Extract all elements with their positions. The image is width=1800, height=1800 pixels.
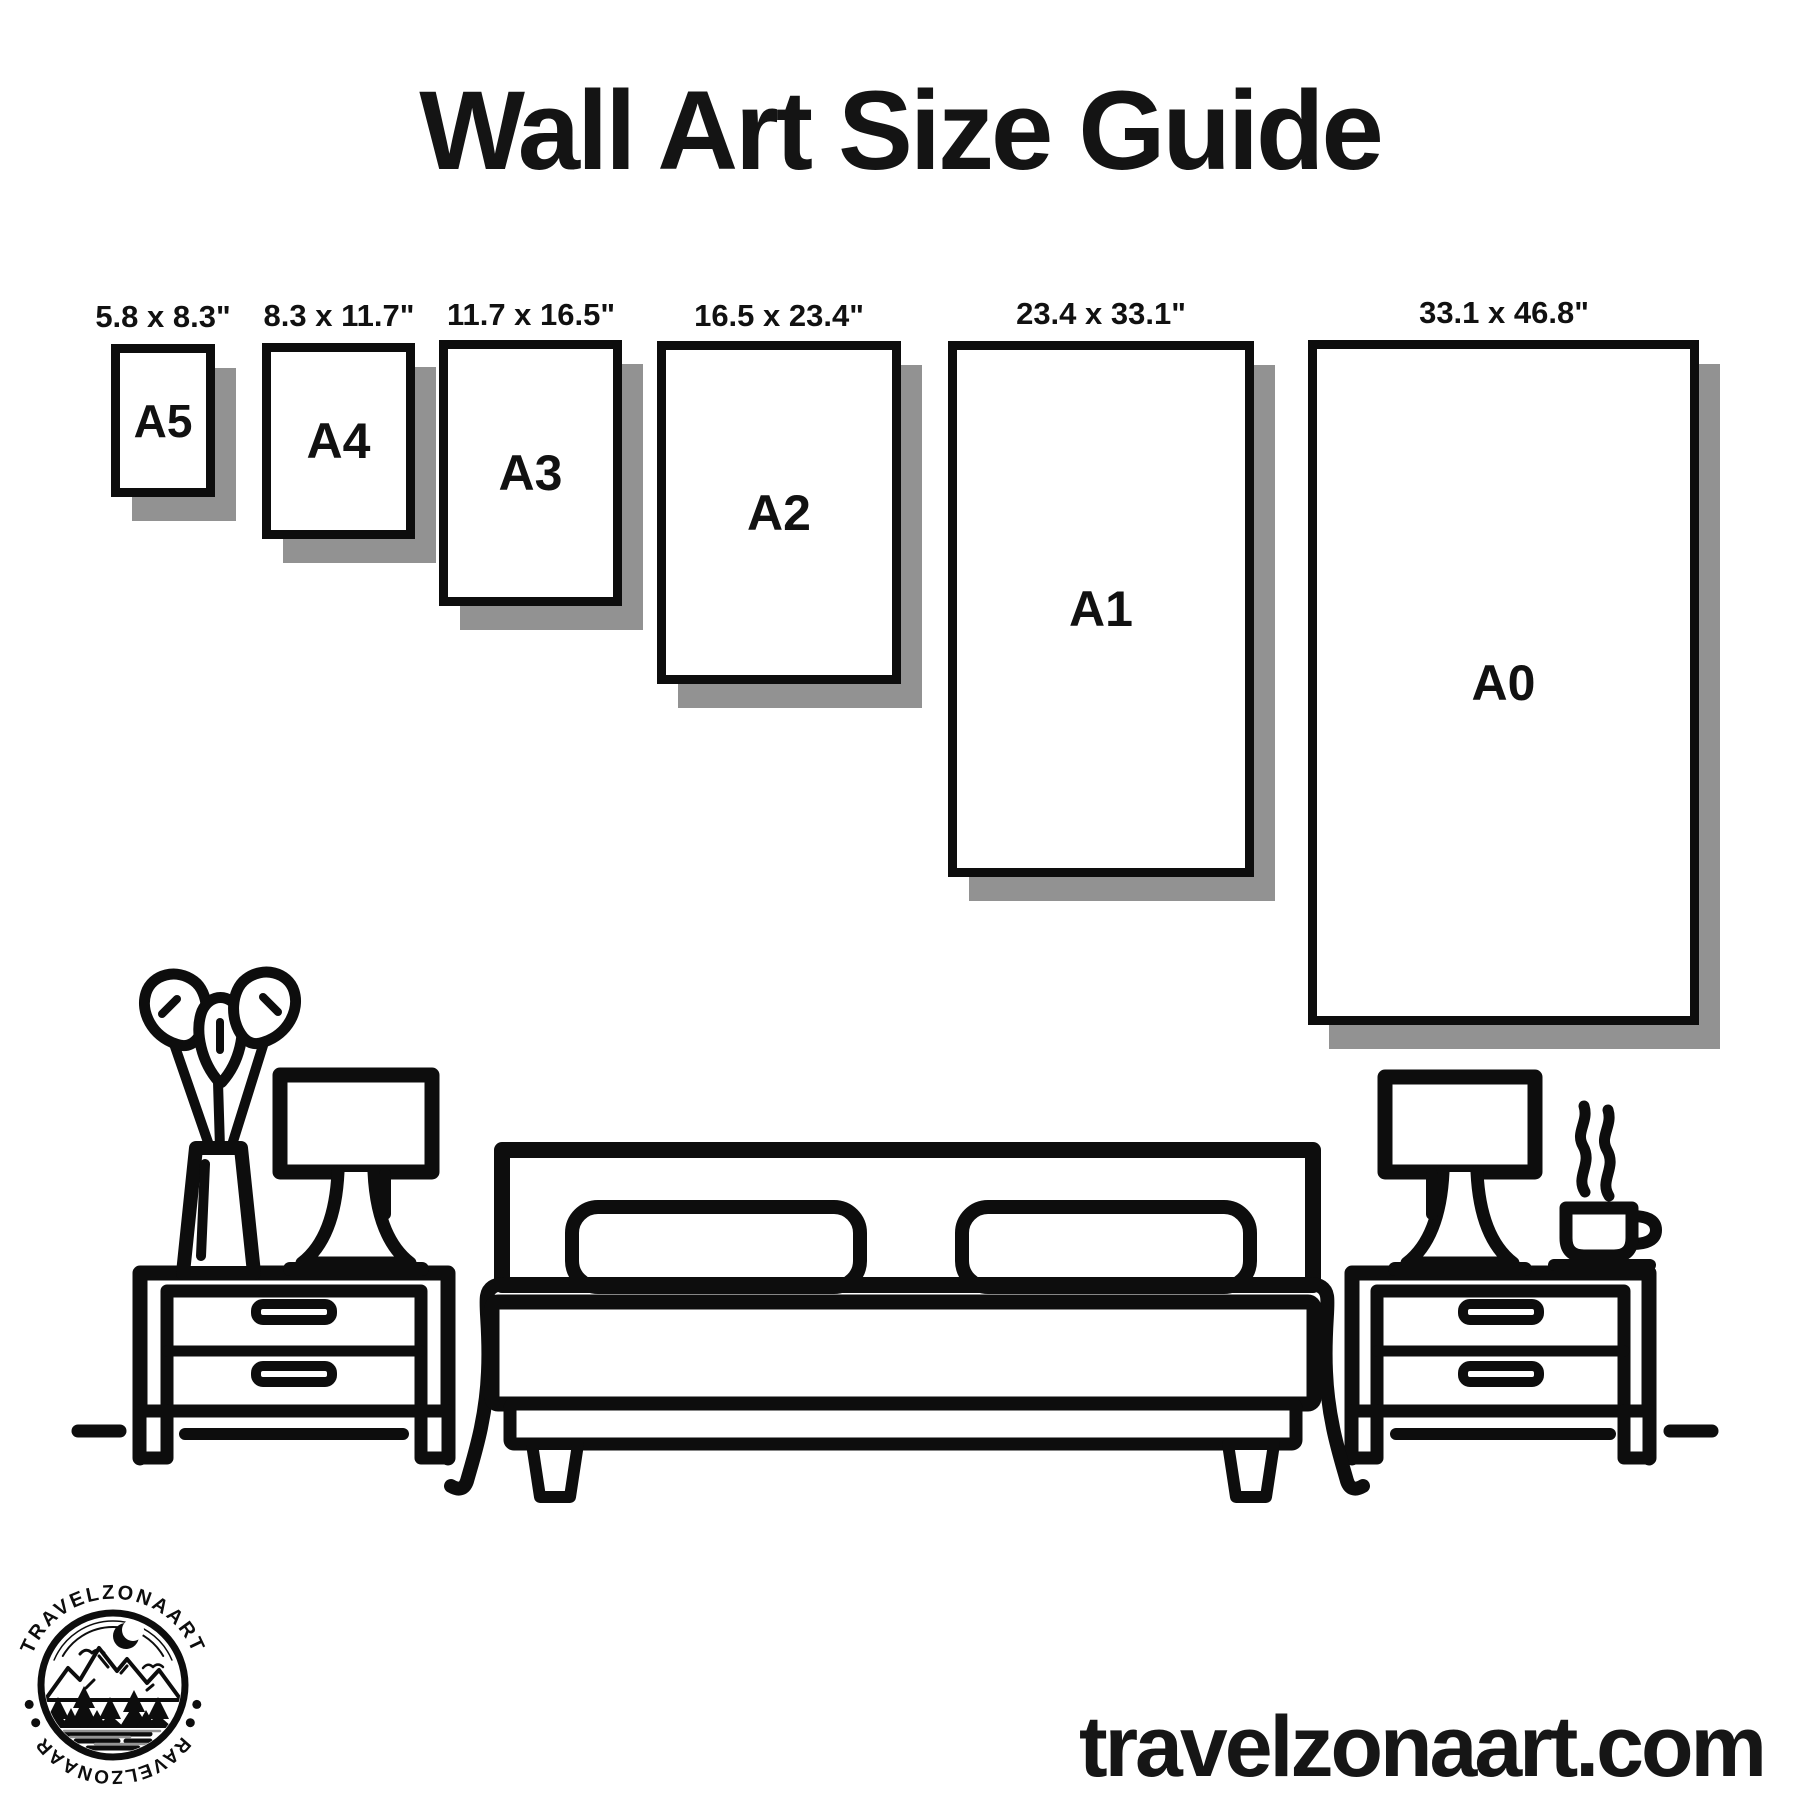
logo-brand-bottom: TRAVELZONAART: [0, 0, 194, 1787]
logo-dot: [192, 1700, 201, 1709]
nightstand-icon: [1352, 1273, 1649, 1458]
pillow: [962, 1207, 1250, 1287]
size-guide-poster: Wall Art Size Guide 5.8 x 8.3" 8.3 x 11.…: [0, 0, 1800, 1800]
steam-icon: [1604, 1110, 1610, 1196]
bed-foot: [532, 1444, 578, 1497]
bed-base: [510, 1404, 1296, 1444]
duvet: [492, 1302, 1314, 1404]
logo-dot: [31, 1718, 40, 1727]
logo-brand-top: TRAVELZONAART: [17, 1582, 210, 1657]
lamp-icon: [280, 1075, 432, 1269]
lamp-shade: [1385, 1077, 1535, 1172]
pillow: [572, 1207, 860, 1287]
lamp-shade: [280, 1075, 432, 1172]
vase: [183, 1148, 254, 1273]
bed-icon: [451, 1150, 1363, 1497]
coffee-cup-icon: [1554, 1106, 1656, 1265]
nightstand-icon: [140, 1273, 448, 1458]
mountains-icon: [45, 1648, 181, 1700]
bed-foot: [1228, 1444, 1274, 1497]
logo-dot: [186, 1718, 195, 1727]
logo-badge: TRAVELZONAART TRAVELZONAART: [0, 0, 209, 1787]
bedroom-scene: TRAVELZONAART TRAVELZONAART: [0, 0, 1800, 1800]
birds-icon: [143, 1665, 163, 1669]
logo-dot: [25, 1700, 34, 1709]
website-url: travelzonaart.com: [1079, 1698, 1764, 1797]
lamp-icon: [1385, 1077, 1535, 1269]
steam-icon: [1580, 1106, 1586, 1192]
